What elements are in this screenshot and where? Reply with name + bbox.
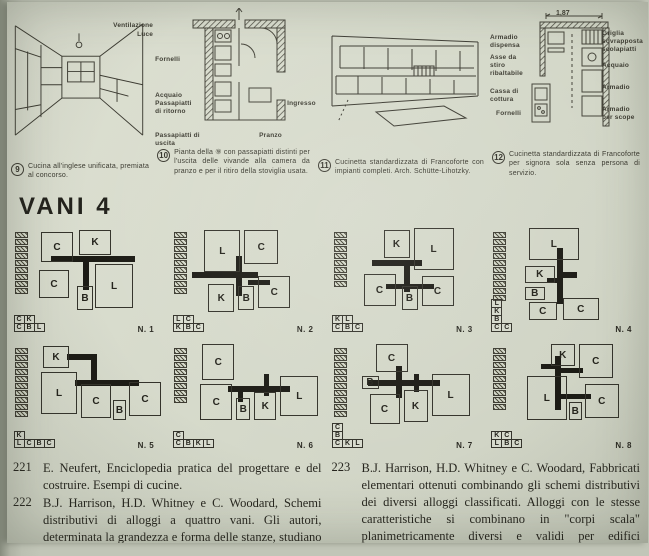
- figure-label: Armadio per scope: [602, 106, 642, 122]
- dimension-label: 1,87: [556, 10, 570, 17]
- stack-cell: [15, 348, 28, 354]
- schemes-grid: CKCLBCKCBLN. 1LCKBCLCKBCN. 2KLCBCKLCBCN.…: [7, 224, 648, 452]
- scheme-number-label: N. 5: [138, 441, 155, 450]
- figure-11-caption: 11 Cucinetta standardizzata di Francofor…: [316, 154, 490, 177]
- room-c: C: [39, 270, 69, 298]
- figure-12-art: 1,87: [490, 10, 646, 146]
- room-k: K: [79, 230, 111, 255]
- figure-label: Fornelli: [155, 56, 181, 64]
- scheme-number-label: N. 8: [615, 441, 632, 450]
- figure-label: Acquaio: [602, 62, 642, 70]
- figure-label: Armadio dispensa: [490, 34, 526, 50]
- figure-label: Luce: [137, 31, 153, 39]
- room-l: L: [414, 228, 454, 270]
- legend-cell: L: [34, 323, 45, 332]
- legend-cell: L: [203, 439, 214, 448]
- kitchen-perspective-drawing: [9, 22, 149, 138]
- stack-cell: [334, 274, 347, 280]
- room-c: C: [81, 384, 111, 418]
- rooms-area: CKCLB: [33, 228, 165, 322]
- stack-cell: [493, 383, 506, 389]
- stack-cell: [334, 411, 347, 417]
- figure-10-caption: 10 Pianta della ⑨ con passapiatti distin…: [155, 144, 316, 176]
- scheme-legend: CKCBL: [14, 315, 44, 331]
- stack-cell: [493, 348, 506, 354]
- stack-cell: [334, 376, 347, 382]
- room-l: L: [527, 376, 567, 420]
- stack-cell: [334, 267, 347, 273]
- bibliography-entry: 221 E. Neufert, Enciclopedia pratica del…: [13, 460, 322, 494]
- section-title: VANI 4: [19, 194, 648, 222]
- cell-stack-strip: [334, 348, 347, 417]
- stack-cell: [174, 383, 187, 389]
- apartment-scheme: CBCKLCBCKLN. 7: [328, 340, 487, 452]
- room-c: C: [41, 232, 73, 262]
- stack-cell: [493, 397, 506, 403]
- stack-cell: [15, 288, 28, 294]
- scheme-legend: KLCBC: [333, 315, 363, 331]
- scheme-number-label: N. 6: [297, 441, 314, 450]
- room-c: C: [258, 276, 290, 308]
- stack-cell: [334, 232, 347, 238]
- stack-cell: [493, 404, 506, 410]
- entry-text: E. Neufert, Enciclopedia pratica del pro…: [43, 460, 322, 494]
- figure-caption-text: Cucina all'inglese unificata, premiata a…: [28, 162, 149, 181]
- room-b: B: [113, 400, 126, 420]
- cell-stack-strip: [15, 348, 28, 417]
- stack-cell: [493, 376, 506, 382]
- room-c: C: [585, 384, 619, 418]
- stack-cell: [493, 253, 506, 259]
- cell-stack-strip: [15, 232, 28, 294]
- stack-cell: [493, 369, 506, 375]
- room-l: L: [432, 374, 470, 416]
- stack-cell: [174, 355, 187, 361]
- legend-cell: C: [193, 323, 204, 332]
- bibliography-entry: 223 B.J. Harrison, H.D. Whitney e C. Woo…: [332, 460, 641, 543]
- stack-cell: [493, 239, 506, 245]
- legend-cell: L: [352, 439, 363, 448]
- stack-cell: [15, 274, 28, 280]
- rooms-area: KLCBC: [33, 344, 165, 438]
- room-l: L: [529, 228, 579, 260]
- room-k: K: [43, 346, 69, 368]
- room-b: B: [238, 286, 254, 310]
- room-b: B: [402, 286, 418, 310]
- apartment-scheme: LKBCCLKBCCN. 4: [487, 224, 646, 336]
- stack-cell: [15, 239, 28, 245]
- book-page-photo: Ventilazione Luce: [0, 0, 649, 556]
- stack-cell: [174, 253, 187, 259]
- cell-stack-strip: [174, 348, 187, 403]
- scheme-legend: KLCBC: [14, 431, 54, 447]
- legend-row: CC: [492, 323, 512, 331]
- room-b: B: [525, 287, 545, 300]
- stack-cell: [334, 355, 347, 361]
- figure-number-badge: 11: [318, 159, 331, 172]
- scheme-number-label: N. 1: [138, 325, 155, 334]
- room-k: K: [208, 284, 234, 312]
- stack-cell: [174, 397, 187, 403]
- room-c: C: [244, 230, 278, 264]
- stack-cell: [334, 253, 347, 259]
- room-c: C: [200, 384, 232, 420]
- stack-cell: [15, 376, 28, 382]
- legend-row: KBC: [173, 323, 203, 331]
- figure-label: Griglia sovrapposta scolapiatti: [602, 30, 646, 53]
- stack-cell: [493, 232, 506, 238]
- stack-cell: [493, 288, 506, 294]
- stack-cell: [174, 239, 187, 245]
- stack-cell: [15, 267, 28, 273]
- rooms-area: LKBCC: [511, 228, 643, 322]
- room-c: C: [563, 298, 599, 320]
- corridor-bar: [192, 272, 258, 278]
- stack-cell: [334, 397, 347, 403]
- stack-cell: [334, 390, 347, 396]
- cell-stack-strip: [174, 232, 187, 294]
- figure-label: Acquaio Passapiatti di ritorno: [155, 92, 193, 115]
- stack-cell: [174, 267, 187, 273]
- figure-number-badge: 12: [492, 151, 505, 164]
- apartment-scheme: KLCBCKLCBCN. 3: [328, 224, 487, 336]
- stack-cell: [493, 362, 506, 368]
- stack-cell: [334, 404, 347, 410]
- figure-label: Passapiatti di uscita: [155, 132, 221, 148]
- figure-9-caption: 9 Cucina all'inglese unificata, premiata…: [9, 158, 155, 181]
- figure-12: 1,87: [490, 4, 646, 190]
- apartment-scheme: KCLBCKCLBCN. 8: [487, 340, 646, 452]
- legend-cell: C: [501, 323, 512, 332]
- stack-cell: [15, 404, 28, 410]
- apartment-scheme: KLCBCKLCBCN. 5: [9, 340, 168, 452]
- stack-cell: [334, 383, 347, 389]
- legend-row: LCBC: [14, 439, 54, 447]
- room-c: C: [129, 382, 161, 416]
- legend-row: CBL: [14, 323, 44, 331]
- stack-cell: [15, 383, 28, 389]
- entry-text: B.J. Harrison, H.D. Whitney e C. Woodard…: [43, 495, 322, 543]
- room-l: L: [41, 372, 77, 414]
- cell-stack-strip: [493, 232, 506, 301]
- figure-label: Pranzo: [259, 132, 285, 140]
- entry-number: 221: [13, 460, 43, 494]
- stack-cell: [493, 246, 506, 252]
- stack-cell: [174, 362, 187, 368]
- room-c: C: [529, 302, 557, 320]
- scheme-legend: KCLBC: [492, 431, 522, 447]
- room-c: C: [202, 344, 234, 380]
- stack-cell: [334, 348, 347, 354]
- rooms-area: CCBKL: [192, 344, 324, 438]
- apartment-scheme: LCKBCLCKBCN. 2: [168, 224, 327, 336]
- stack-cell: [15, 246, 28, 252]
- legend-row: CKL: [333, 439, 363, 447]
- figure-11: 11 Cucinetta standardizzata di Francofor…: [316, 4, 490, 190]
- stack-cell: [15, 355, 28, 361]
- stack-cell: [334, 260, 347, 266]
- stack-cell: [493, 274, 506, 280]
- stack-cell: [174, 274, 187, 280]
- room-l: L: [95, 264, 133, 308]
- figure-label: Ingresso: [287, 100, 317, 108]
- figure-12-caption: 12 Cucinetta standardizzata di Francofor…: [490, 146, 646, 178]
- room-c: C: [364, 274, 396, 306]
- apartment-scheme: CCBKLCCBKLN. 6: [168, 340, 327, 452]
- scheme-legend: LCKBC: [173, 315, 203, 331]
- kitchen-plan-drawing: [177, 8, 302, 136]
- stack-cell: [15, 390, 28, 396]
- legend-cell: C: [44, 439, 55, 448]
- page: Ventilazione Luce: [7, 2, 648, 543]
- stack-cell: [174, 369, 187, 375]
- figure-10-art: Fornelli Acquaio Passapiatti di ritorno …: [155, 8, 316, 144]
- stack-cell: [493, 390, 506, 396]
- stack-cell: [15, 369, 28, 375]
- stack-cell: [493, 260, 506, 266]
- figure-9: Ventilazione Luce: [9, 4, 155, 190]
- room-k: K: [404, 390, 428, 422]
- room-c: C: [376, 344, 408, 372]
- figures-row: Ventilazione Luce: [7, 2, 648, 190]
- stack-cell: [334, 239, 347, 245]
- stack-cell: [334, 246, 347, 252]
- stack-cell: [334, 281, 347, 287]
- figure-label: Armadio: [602, 84, 642, 92]
- figure-11-art: [316, 18, 490, 154]
- room-c: C: [370, 394, 400, 424]
- room-k: K: [551, 344, 575, 366]
- scheme-legend: CCBKL: [173, 431, 213, 447]
- figure-10: Fornelli Acquaio Passapiatti di ritorno …: [155, 4, 316, 190]
- rooms-area: KLCBC: [352, 228, 484, 322]
- legend-row: CBC: [333, 323, 363, 331]
- scheme-number-label: N. 3: [456, 325, 473, 334]
- stack-cell: [334, 369, 347, 375]
- figure-number-badge: 10: [157, 149, 170, 162]
- room-l: L: [204, 230, 240, 272]
- figure-label: Fornelli: [496, 110, 526, 118]
- room-c: C: [422, 276, 454, 306]
- stack-cell: [15, 253, 28, 259]
- figure-caption-text: Cucinetta standardizzata di Francoforte …: [509, 150, 640, 178]
- stack-cell: [15, 397, 28, 403]
- apartment-scheme: CKCLBCKCBLN. 1: [9, 224, 168, 336]
- scheme-number-label: N. 2: [297, 325, 314, 334]
- stack-cell: [15, 411, 28, 417]
- room-b: B: [236, 398, 250, 420]
- figure-number-badge: 9: [11, 163, 24, 176]
- rooms-area: LCKBC: [192, 228, 324, 322]
- legend-row: LBC: [492, 439, 522, 447]
- bibliography-column-right: 223 B.J. Harrison, H.D. Whitney e C. Woo…: [332, 460, 641, 543]
- stack-cell: [174, 390, 187, 396]
- entry-text: B.J. Harrison, H.D. Whitney e C. Woodard…: [362, 460, 641, 543]
- figure-caption-text: Cucinetta standardizzata di Francoforte …: [335, 158, 484, 177]
- corridor-bar: [563, 272, 577, 278]
- stack-cell: [174, 376, 187, 382]
- room-b: B: [362, 376, 379, 389]
- bibliography-column-left: 221 E. Neufert, Enciclopedia pratica del…: [13, 460, 322, 543]
- bibliography: 221 E. Neufert, Enciclopedia pratica del…: [7, 452, 648, 543]
- figure-label: Ventilazione: [113, 22, 153, 30]
- stack-cell: [174, 288, 187, 294]
- scheme-legend: LKBCC: [492, 299, 512, 331]
- bibliography-entry: 222 B.J. Harrison, H.D. Whitney e C. Woo…: [13, 495, 322, 543]
- scheme-number-label: N. 7: [456, 441, 473, 450]
- figure-label: Cassa di cottura: [490, 88, 528, 104]
- legend-cell: C: [352, 323, 363, 332]
- stack-cell: [174, 232, 187, 238]
- stack-cell: [15, 281, 28, 287]
- stack-cell: [15, 260, 28, 266]
- stack-cell: [334, 362, 347, 368]
- room-b: B: [569, 402, 582, 420]
- figure-label: Asse da stiro ribaltabile: [490, 54, 526, 77]
- stack-cell: [493, 355, 506, 361]
- stack-cell: [15, 362, 28, 368]
- room-b: B: [77, 286, 93, 310]
- rooms-area: KCLBC: [511, 344, 643, 438]
- stack-cell: [493, 267, 506, 273]
- stack-cell: [174, 260, 187, 266]
- entry-number: 223: [332, 460, 362, 543]
- legend-cell: C: [511, 439, 522, 448]
- kitchen-cabinets-drawing: [318, 18, 490, 130]
- scheme-legend: CBCKL: [333, 423, 363, 447]
- room-c: C: [579, 344, 613, 378]
- figure-caption-text: Pianta della ⑨ con passapiatti distinti …: [174, 148, 310, 176]
- cell-stack-strip: [334, 232, 347, 287]
- room-k: K: [384, 230, 410, 258]
- legend-row: CBKL: [173, 439, 213, 447]
- stack-cell: [174, 246, 187, 252]
- entry-number: 222: [13, 495, 43, 543]
- cell-stack-strip: [493, 348, 506, 410]
- room-k: K: [525, 266, 555, 283]
- room-k: K: [254, 392, 276, 420]
- figure-9-art: Ventilazione Luce: [9, 22, 155, 158]
- room-l: L: [280, 376, 318, 416]
- stack-cell: [174, 348, 187, 354]
- stack-cell: [15, 232, 28, 238]
- scheme-number-label: N. 4: [615, 325, 632, 334]
- stack-cell: [174, 281, 187, 287]
- stack-cell: [493, 281, 506, 287]
- rooms-area: CBCKL: [352, 344, 484, 438]
